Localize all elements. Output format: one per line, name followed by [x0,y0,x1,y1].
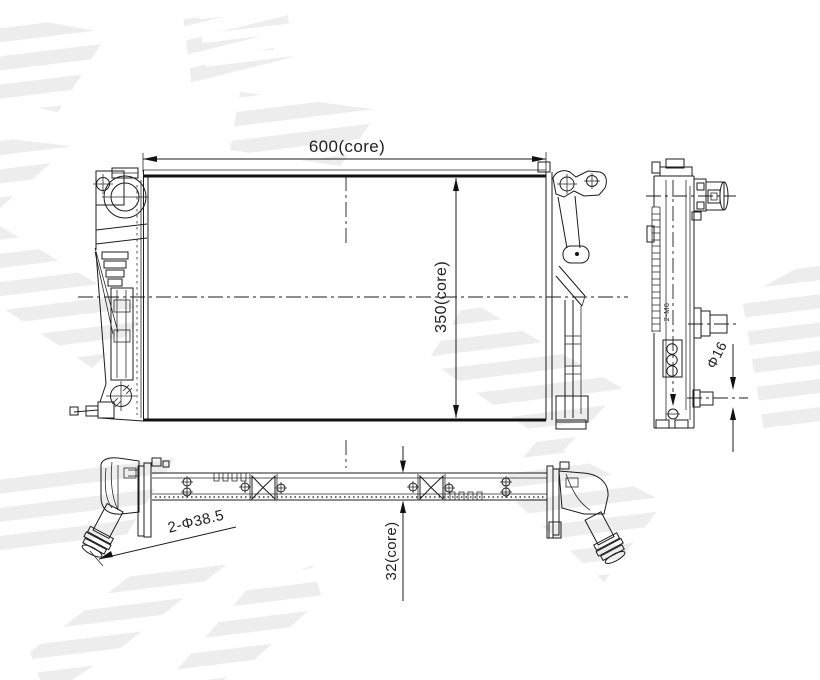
core-height-label: 350(core) [433,261,450,333]
rivet-crosshair-icons [181,476,512,498]
dimension-core-depth: 32(core) [383,446,406,601]
bracket-screw-crosshair-icon [584,173,600,189]
dimension-outlet-pipe: Φ16 [703,339,736,452]
core-outline [78,162,628,420]
dimension-core-height: 350(core) [433,178,459,418]
core-width-label: 600(core) [309,137,385,156]
core-depth-label: 32(core) [383,521,400,580]
drawing-canvas: 2-M6 [0,0,820,680]
middle-pipe-icon [688,308,737,338]
lower-pipe-icon [687,390,748,407]
bracket-details [214,473,482,500]
radiator-technical-drawing: 2-M6 [0,0,820,680]
outlet-pipe-label: Φ16 [703,339,730,371]
inlet-pipes-label: 2-Φ38.5 [166,507,226,537]
drain-plug-crosshair-icon [106,381,136,411]
dimension-core-width: 600(core) [143,137,546,174]
mounting-thread-label: 2-M6 [662,303,671,322]
watermark-letters [0,7,820,680]
